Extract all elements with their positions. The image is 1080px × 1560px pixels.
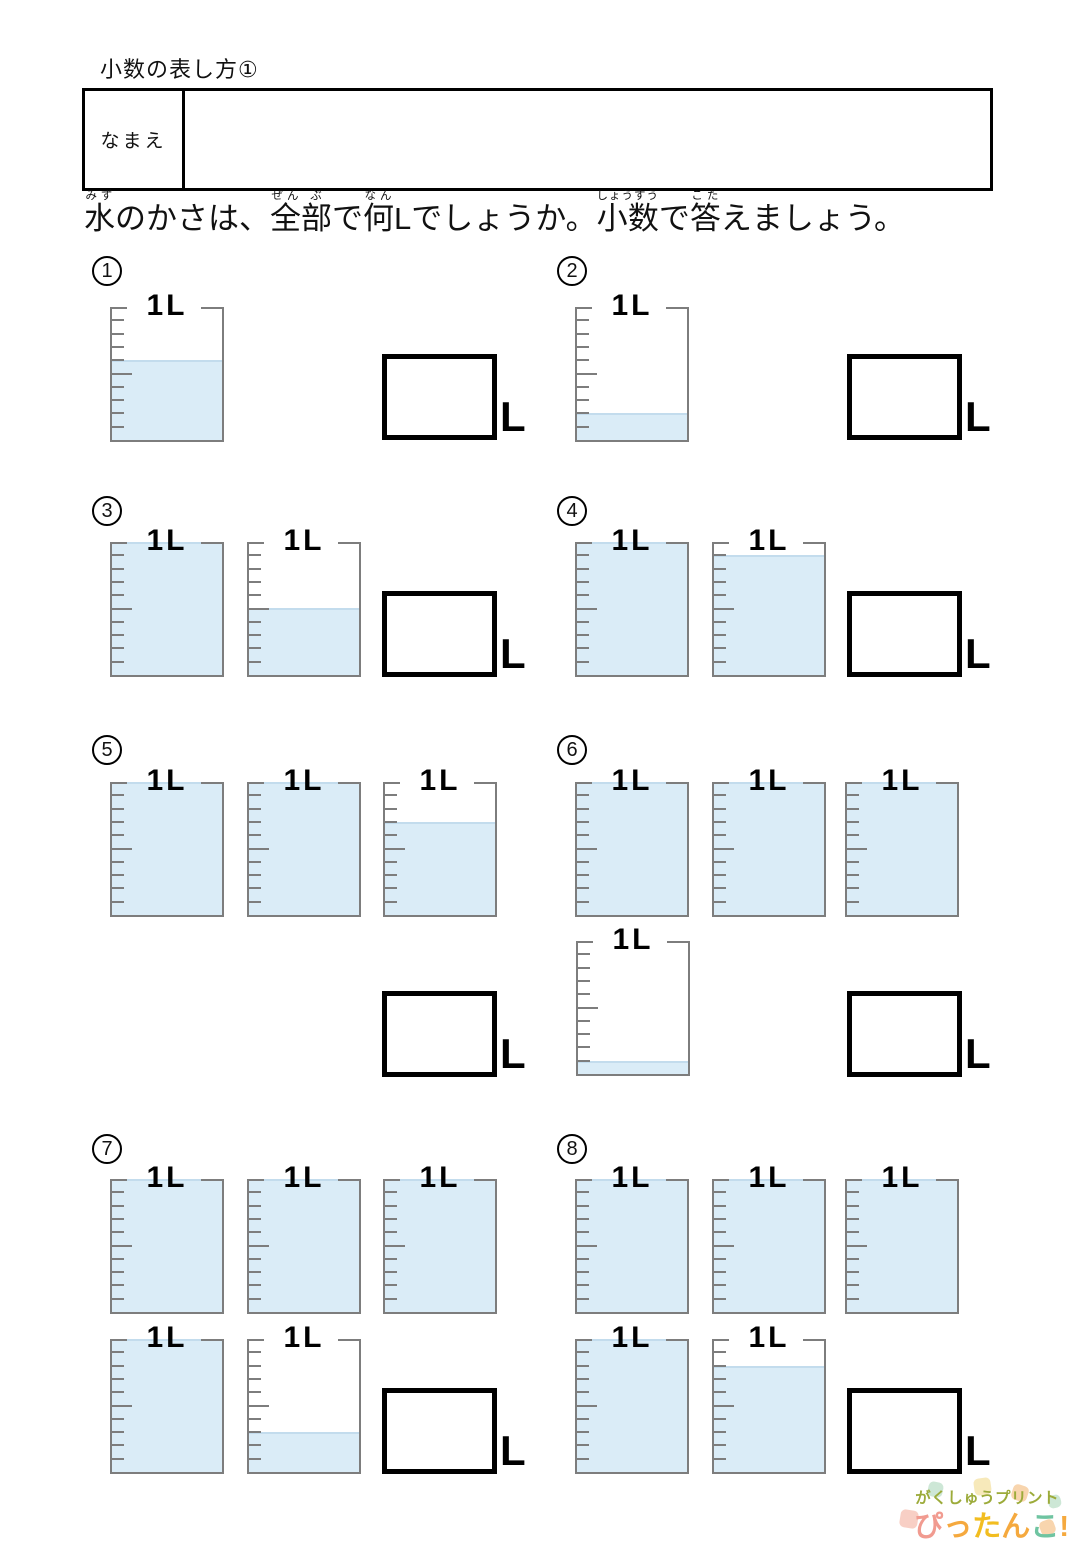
scale-tick <box>385 794 397 796</box>
scale-tick <box>385 874 397 876</box>
measuring-cup: 1L <box>110 307 224 442</box>
scale-tick <box>249 594 261 596</box>
answer-box[interactable]: L <box>847 354 962 440</box>
measuring-cup: 1L <box>383 782 497 917</box>
cup-rim <box>847 1179 862 1181</box>
scale-tick <box>385 834 397 836</box>
scale-tick <box>112 1298 124 1300</box>
scale-tick <box>112 1284 124 1286</box>
scale-tick <box>112 821 124 823</box>
scale-tick <box>577 1378 589 1380</box>
scale-tick <box>578 1046 590 1048</box>
scale-tick <box>112 901 124 903</box>
scale-tick <box>577 848 597 850</box>
scale-tick <box>714 1378 726 1380</box>
scale-tick <box>249 1205 261 1207</box>
unit-label: L <box>500 638 526 671</box>
capacity-label: 1L <box>611 766 652 796</box>
capacity-label: 1L <box>283 526 324 556</box>
scale-tick <box>112 1444 124 1446</box>
unit-label: L <box>965 401 991 434</box>
scale-tick <box>385 1284 397 1286</box>
cup-rim <box>666 307 687 309</box>
scale-tick <box>578 993 590 995</box>
scale-tick <box>847 1218 859 1220</box>
scale-tick <box>112 1218 124 1220</box>
scale-tick <box>577 887 589 889</box>
unit-label: L <box>965 1038 991 1071</box>
scale-tick <box>249 1458 261 1460</box>
instruction-text: 水みずのかさは、全ぜん部ぶで何なんLでしょうか。小数しょうすうで答こたえましょう… <box>84 190 905 243</box>
scale-tick <box>714 901 726 903</box>
scale-tick <box>249 554 261 556</box>
cup-rim <box>666 1179 687 1181</box>
scale-tick <box>577 901 589 903</box>
cup-rim <box>803 1179 824 1181</box>
scale-tick <box>112 808 124 810</box>
scale-tick <box>112 319 124 321</box>
cup-rim <box>936 1179 957 1181</box>
scale-tick <box>577 1431 589 1433</box>
cup-rim <box>578 941 593 943</box>
answer-box[interactable]: L <box>382 991 497 1077</box>
problem-number-badge: 1 <box>92 256 122 286</box>
scale-tick <box>847 1231 859 1233</box>
answer-box[interactable]: L <box>847 591 962 677</box>
scale-tick <box>112 848 132 850</box>
scale-tick <box>385 887 397 889</box>
measuring-cup: 1L <box>712 542 826 677</box>
measuring-cup: 1L <box>575 1179 689 1314</box>
cup-rim <box>714 782 729 784</box>
cup-rim <box>577 542 592 544</box>
scale-tick <box>577 399 589 401</box>
cup-rim <box>112 1339 127 1341</box>
measuring-cup: 1L <box>247 542 361 677</box>
scale-tick <box>577 581 589 583</box>
scale-tick <box>249 1284 261 1286</box>
scale-tick <box>847 808 859 810</box>
cup-rim <box>803 782 824 784</box>
scale-tick <box>578 1060 590 1062</box>
scale-tick <box>714 794 726 796</box>
scale-tick <box>578 967 590 969</box>
scale-tick <box>577 1245 597 1247</box>
scale-tick <box>249 808 261 810</box>
scale-tick <box>714 1431 726 1433</box>
scale-tick <box>714 1391 726 1393</box>
scale-tick <box>385 1191 397 1193</box>
cup-rim <box>385 782 400 784</box>
scale-tick <box>577 1271 589 1273</box>
measuring-cup: 1L <box>110 782 224 917</box>
scale-tick <box>577 319 589 321</box>
scale-tick <box>577 568 589 570</box>
logo-text-main: ぴったんこ! <box>914 1503 1069 1545</box>
scale-tick <box>577 821 589 823</box>
scale-tick <box>714 1458 726 1460</box>
unit-label: L <box>500 1435 526 1468</box>
scale-tick <box>112 333 124 335</box>
scale-tick <box>714 848 734 850</box>
scale-tick <box>249 1218 261 1220</box>
water-fill <box>249 608 359 675</box>
scale-tick <box>577 1231 589 1233</box>
scale-tick <box>714 1284 726 1286</box>
worksheet-page: 小数の表し方① なまえ 水みずのかさは、全ぜん部ぶで何なんLでしょうか。小数しょ… <box>0 0 1080 1560</box>
problem-number-badge: 3 <box>92 496 122 526</box>
capacity-label: 1L <box>146 291 187 321</box>
cup-rim <box>936 782 957 784</box>
measuring-cup: 1L <box>110 542 224 677</box>
capacity-label: 1L <box>748 1323 789 1353</box>
cup-rim <box>201 782 222 784</box>
scale-tick <box>249 1245 269 1247</box>
measuring-cup: 1L <box>575 782 689 917</box>
scale-tick <box>112 359 124 361</box>
cup-rim <box>803 542 824 544</box>
problem-number-badge: 5 <box>92 735 122 765</box>
cup-rim <box>112 542 127 544</box>
scale-tick <box>385 1231 397 1233</box>
scale-tick <box>112 386 124 388</box>
scale-tick <box>577 386 589 388</box>
scale-tick <box>112 887 124 889</box>
scale-tick <box>714 821 726 823</box>
scale-tick <box>112 834 124 836</box>
scale-tick <box>714 887 726 889</box>
scale-tick <box>577 1391 589 1393</box>
scale-tick <box>847 901 859 903</box>
scale-tick <box>714 861 726 863</box>
scale-tick <box>112 1258 124 1260</box>
capacity-label: 1L <box>283 1323 324 1353</box>
answer-box[interactable]: L <box>382 1388 497 1474</box>
scale-tick <box>249 634 261 636</box>
cup-rim <box>666 542 687 544</box>
scale-tick <box>577 1258 589 1260</box>
scale-tick <box>249 901 261 903</box>
scale-tick <box>577 1351 589 1353</box>
cup-rim <box>249 1179 264 1181</box>
scale-tick <box>249 1378 261 1380</box>
measuring-cup: 1L <box>110 1339 224 1474</box>
water-fill <box>385 822 495 915</box>
scale-tick <box>112 1458 124 1460</box>
scale-tick <box>714 808 726 810</box>
capacity-label: 1L <box>146 766 187 796</box>
scale-tick <box>714 661 726 663</box>
scale-tick <box>249 1405 269 1407</box>
cup-rim <box>249 1339 264 1341</box>
problem-number-badge: 7 <box>92 1134 122 1164</box>
answer-box[interactable]: L <box>847 1388 962 1474</box>
scale-tick <box>577 1444 589 1446</box>
cup-rim <box>338 542 359 544</box>
water-fill <box>112 360 222 440</box>
scale-tick <box>577 359 589 361</box>
scale-tick <box>714 621 726 623</box>
cup-rim <box>714 1339 729 1341</box>
scale-tick <box>112 608 132 610</box>
scale-tick <box>385 848 405 850</box>
scale-tick <box>249 1391 261 1393</box>
water-fill <box>714 1366 824 1472</box>
cup-rim <box>112 307 127 309</box>
scale-tick <box>577 554 589 556</box>
scale-tick <box>249 887 261 889</box>
scale-tick <box>249 1418 261 1420</box>
scale-tick <box>112 1271 124 1273</box>
site-logo: がくしゅうプリント ぴったんこ! <box>890 1478 1075 1558</box>
scale-tick <box>249 821 261 823</box>
scale-tick <box>578 1020 590 1022</box>
scale-tick <box>714 834 726 836</box>
cup-rim <box>474 1179 495 1181</box>
scale-tick <box>249 1191 261 1193</box>
scale-tick <box>249 1365 261 1367</box>
cup-rim <box>249 782 264 784</box>
scale-tick <box>577 834 589 836</box>
scale-tick <box>577 1218 589 1220</box>
cup-rim <box>577 782 592 784</box>
scale-tick <box>249 848 269 850</box>
capacity-label: 1L <box>146 526 187 556</box>
scale-tick <box>112 874 124 876</box>
unit-label: L <box>965 1435 991 1468</box>
water-fill <box>578 1061 688 1074</box>
scale-tick <box>714 1365 726 1367</box>
scale-tick <box>112 794 124 796</box>
scale-tick <box>577 412 589 414</box>
capacity-label: 1L <box>611 1163 652 1193</box>
scale-tick <box>577 426 589 428</box>
scale-tick <box>249 1444 261 1446</box>
scale-tick <box>249 794 261 796</box>
scale-tick <box>714 1245 734 1247</box>
capacity-label: 1L <box>612 925 653 955</box>
scale-tick <box>578 1033 590 1035</box>
cup-rim <box>803 1339 824 1341</box>
scale-tick <box>847 1245 867 1247</box>
cup-rim <box>577 1339 592 1341</box>
scale-tick <box>714 1351 726 1353</box>
scale-tick <box>578 1007 598 1009</box>
cup-rim <box>338 1179 359 1181</box>
scale-tick <box>112 594 124 596</box>
scale-tick <box>249 834 261 836</box>
scale-tick <box>385 901 397 903</box>
scale-tick <box>112 373 132 375</box>
water-fill <box>249 1432 359 1472</box>
scale-tick <box>385 1258 397 1260</box>
scale-tick <box>249 1258 261 1260</box>
cup-rim <box>112 1179 127 1181</box>
measuring-cup: 1L <box>383 1179 497 1314</box>
name-label: なまえ <box>85 91 185 188</box>
cup-rim <box>577 1179 592 1181</box>
scale-tick <box>847 1205 859 1207</box>
scale-tick <box>577 594 589 596</box>
capacity-label: 1L <box>611 291 652 321</box>
scale-tick <box>249 581 261 583</box>
scale-tick <box>112 1405 132 1407</box>
scale-tick <box>249 1271 261 1273</box>
measuring-cup: 1L <box>576 941 690 1076</box>
scale-tick <box>112 346 124 348</box>
name-input-area[interactable] <box>185 91 990 188</box>
cup-rim <box>249 542 264 544</box>
scale-tick <box>847 874 859 876</box>
scale-tick <box>112 1391 124 1393</box>
scale-tick <box>112 568 124 570</box>
scale-tick <box>577 373 597 375</box>
page-title: 小数の表し方① <box>100 52 259 84</box>
cup-rim <box>201 1179 222 1181</box>
cup-rim <box>201 307 222 309</box>
scale-tick <box>112 861 124 863</box>
scale-tick <box>112 1365 124 1367</box>
scale-tick <box>847 1298 859 1300</box>
scale-tick <box>577 621 589 623</box>
scale-tick <box>385 861 397 863</box>
answer-box[interactable]: L <box>382 591 497 677</box>
scale-tick <box>714 1191 726 1193</box>
capacity-label: 1L <box>146 1323 187 1353</box>
water-fill <box>577 413 687 440</box>
capacity-label: 1L <box>748 766 789 796</box>
scale-tick <box>577 346 589 348</box>
scale-tick <box>714 1258 726 1260</box>
scale-tick <box>577 333 589 335</box>
scale-tick <box>112 554 124 556</box>
scale-tick <box>112 1351 124 1353</box>
problem-number-badge: 4 <box>557 496 587 526</box>
scale-tick <box>112 1231 124 1233</box>
scale-tick <box>577 1191 589 1193</box>
cup-rim <box>714 1179 729 1181</box>
scale-tick <box>385 1298 397 1300</box>
scale-tick <box>714 568 726 570</box>
scale-tick <box>847 1191 859 1193</box>
scale-tick <box>847 887 859 889</box>
cup-rim <box>474 782 495 784</box>
scale-tick <box>714 581 726 583</box>
scale-tick <box>112 621 124 623</box>
scale-tick <box>714 1405 734 1407</box>
scale-tick <box>577 874 589 876</box>
measuring-cup: 1L <box>845 1179 959 1314</box>
cup-rim <box>112 782 127 784</box>
cup-rim <box>338 1339 359 1341</box>
scale-tick <box>249 661 261 663</box>
scale-tick <box>577 634 589 636</box>
unit-label: L <box>965 638 991 671</box>
scale-tick <box>714 608 734 610</box>
measuring-cup: 1L <box>247 1339 361 1474</box>
name-box: なまえ <box>82 88 993 191</box>
answer-box[interactable]: L <box>382 354 497 440</box>
scale-tick <box>249 608 269 610</box>
measuring-cup: 1L <box>575 542 689 677</box>
scale-tick <box>714 1298 726 1300</box>
scale-tick <box>249 647 261 649</box>
scale-tick <box>714 554 726 556</box>
scale-tick <box>847 834 859 836</box>
scale-tick <box>249 621 261 623</box>
capacity-label: 1L <box>748 526 789 556</box>
cup-rim <box>577 307 592 309</box>
scale-tick <box>847 861 859 863</box>
scale-tick <box>112 1431 124 1433</box>
scale-tick <box>847 1284 859 1286</box>
scale-tick <box>112 426 124 428</box>
scale-tick <box>714 1218 726 1220</box>
scale-tick <box>112 1245 132 1247</box>
scale-tick <box>577 1458 589 1460</box>
scale-tick <box>385 808 397 810</box>
scale-tick <box>249 1431 261 1433</box>
scale-tick <box>577 861 589 863</box>
capacity-label: 1L <box>283 1163 324 1193</box>
scale-tick <box>577 794 589 796</box>
scale-tick <box>577 661 589 663</box>
scale-tick <box>714 647 726 649</box>
cup-rim <box>666 782 687 784</box>
cup-rim <box>385 1179 400 1181</box>
scale-tick <box>714 1231 726 1233</box>
capacity-label: 1L <box>283 766 324 796</box>
capacity-label: 1L <box>419 1163 460 1193</box>
measuring-cup: 1L <box>575 1339 689 1474</box>
unit-label: L <box>500 1038 526 1071</box>
scale-tick <box>847 1271 859 1273</box>
scale-tick <box>112 1191 124 1193</box>
scale-tick <box>249 1231 261 1233</box>
scale-tick <box>112 412 124 414</box>
measuring-cup: 1L <box>247 782 361 917</box>
scale-tick <box>714 1271 726 1273</box>
scale-tick <box>577 808 589 810</box>
problem-number-badge: 6 <box>557 735 587 765</box>
scale-tick <box>249 874 261 876</box>
capacity-label: 1L <box>146 1163 187 1193</box>
scale-tick <box>385 1271 397 1273</box>
scale-tick <box>847 794 859 796</box>
scale-tick <box>112 581 124 583</box>
cup-rim <box>667 941 688 943</box>
problem-number-badge: 8 <box>557 1134 587 1164</box>
answer-box[interactable]: L <box>847 991 962 1077</box>
cup-rim <box>201 542 222 544</box>
scale-tick <box>112 1205 124 1207</box>
scale-tick <box>847 821 859 823</box>
scale-tick <box>112 1418 124 1420</box>
scale-tick <box>577 1365 589 1367</box>
scale-tick <box>112 634 124 636</box>
scale-tick <box>577 1284 589 1286</box>
cup-rim <box>338 782 359 784</box>
scale-tick <box>249 861 261 863</box>
water-fill <box>714 555 824 675</box>
capacity-label: 1L <box>419 766 460 796</box>
measuring-cup: 1L <box>247 1179 361 1314</box>
scale-tick <box>385 1218 397 1220</box>
scale-tick <box>577 647 589 649</box>
capacity-label: 1L <box>611 526 652 556</box>
scale-tick <box>714 874 726 876</box>
scale-tick <box>112 1378 124 1380</box>
